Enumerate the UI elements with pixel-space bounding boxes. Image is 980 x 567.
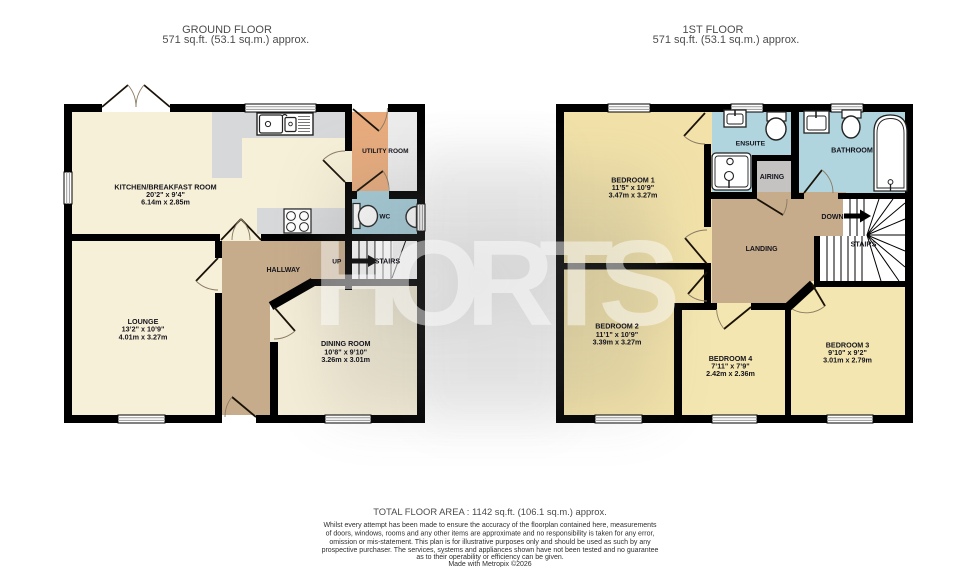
svg-text:TOTAL FLOOR AREA : 1142 sq.ft.: TOTAL FLOOR AREA : 1142 sq.ft. (106.1 sq… [373,506,607,517]
svg-text:BATHROOM: BATHROOM [831,146,873,155]
svg-text:omission or mis-statement. Thi: omission or mis-statement. This plan is … [329,539,651,546]
svg-text:AIRING: AIRING [760,174,785,181]
svg-text:HALLWAY: HALLWAY [267,267,301,274]
svg-text:2.42m x 2.36m: 2.42m x 2.36m [706,369,755,378]
svg-text:3.01m x 2.79m: 3.01m x 2.79m [823,355,872,364]
svg-text:Whilst every attempt has been: Whilst every attempt has been made to en… [323,522,657,529]
svg-text:4.01m x 3.27m: 4.01m x 3.27m [119,333,168,342]
svg-text:STAIRS: STAIRS [851,240,877,249]
svg-text:as to their operability or eff: as to their operability or efficiency ca… [416,554,563,561]
svg-text:ENSUITE: ENSUITE [736,141,766,148]
svg-text:Made with Metropix ©2026: Made with Metropix ©2026 [448,560,531,567]
svg-text:3.26m x 3.01m: 3.26m x 3.01m [321,355,370,364]
svg-text:of doors, windows, rooms and a: of doors, windows, rooms and any other i… [326,531,655,538]
svg-text:WC: WC [379,213,390,220]
svg-text:UP: UP [332,258,342,265]
svg-text:prospective purchaser. The ser: prospective purchaser. The services, sys… [322,547,659,554]
svg-text:571 sq.ft. (53.1 sq.m.) approx: 571 sq.ft. (53.1 sq.m.) approx. [162,34,309,46]
svg-text:571 sq.ft. (53.1 sq.m.) approx: 571 sq.ft. (53.1 sq.m.) approx. [653,34,800,46]
svg-text:STAIRS: STAIRS [375,257,401,265]
svg-text:3.39m x 3.27m: 3.39m x 3.27m [593,337,642,346]
svg-text:LANDING: LANDING [746,246,778,253]
svg-text:3.47m x 3.27m: 3.47m x 3.27m [609,190,658,199]
svg-text:UTILITY ROOM: UTILITY ROOM [362,148,408,155]
svg-text:DOWN: DOWN [821,214,843,221]
svg-text:6.14m x 2.85m: 6.14m x 2.85m [141,197,190,206]
